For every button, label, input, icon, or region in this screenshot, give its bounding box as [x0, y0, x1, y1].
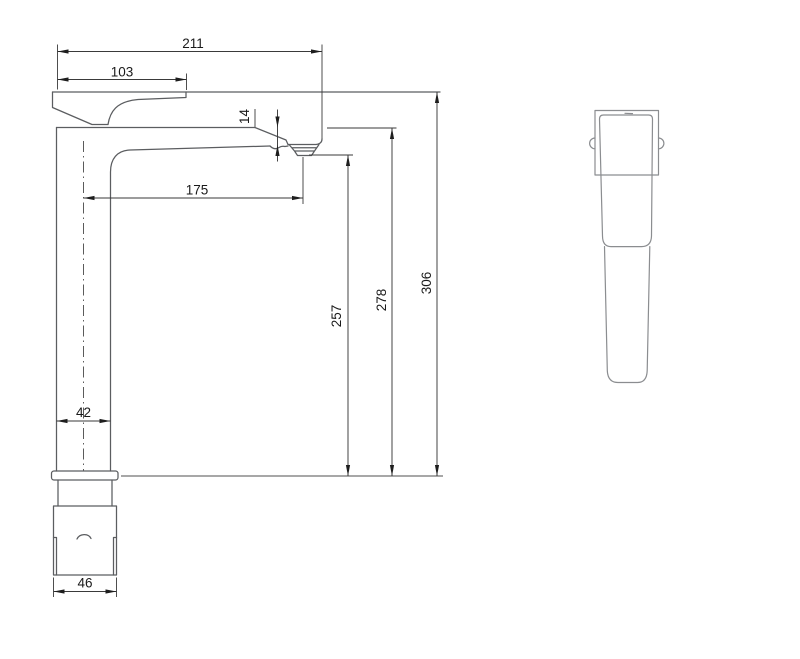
arrowhead-down	[346, 465, 350, 476]
handle-collar	[595, 111, 659, 176]
handle-neck	[605, 247, 650, 383]
base-flange	[52, 471, 119, 480]
dimension-outlet-height: 257	[309, 155, 353, 476]
handle-blade	[600, 115, 653, 247]
spout-nose-ledge	[288, 139, 322, 145]
arrowhead-right	[100, 419, 111, 423]
faucet-dimension-drawing: 211 103 14 175 257 278	[0, 0, 800, 659]
dimension-base-width: 46	[54, 576, 117, 598]
mounting-shank	[58, 480, 112, 506]
arrowhead-up	[435, 92, 439, 103]
dim-value-rim-height: 278	[374, 289, 389, 312]
dim-value-handle-length: 103	[111, 65, 134, 80]
arrowhead-left	[57, 419, 68, 423]
spout-nose-slope	[255, 128, 288, 145]
technical-drawing-canvas: 211 103 14 175 257 278	[0, 0, 800, 659]
arrowhead-right	[106, 589, 117, 593]
arrowhead-down	[275, 117, 279, 128]
arrowhead-down	[435, 465, 439, 476]
dimension-spout-reach: 175	[84, 157, 304, 204]
arrowhead-left	[58, 77, 69, 81]
dimension-body-width: 42	[57, 405, 111, 423]
dim-value-spout-drop: 14	[237, 109, 252, 125]
dim-value-outlet-height: 257	[329, 305, 344, 328]
arrowhead-up	[390, 128, 394, 139]
mounting-nut-detail-arc	[77, 535, 91, 539]
dim-value-overall-height: 306	[419, 272, 434, 295]
lever-back-wedge	[53, 92, 109, 125]
arrowhead-left	[58, 49, 69, 53]
arrowhead-right	[176, 77, 187, 81]
handle-pivot-pin-right	[659, 138, 664, 149]
dim-value-spout-reach: 175	[186, 183, 209, 198]
handle-side-view	[590, 111, 664, 383]
mounting-nut-block	[54, 506, 117, 575]
arrowhead-up	[275, 145, 279, 156]
dim-value-overall-length: 211	[182, 36, 204, 51]
arrowhead-right	[311, 49, 322, 53]
dimension-overall-length: 211	[58, 36, 323, 139]
spout-drip-edge	[270, 146, 288, 149]
faucet-front-view	[52, 92, 441, 575]
arrowhead-right	[292, 196, 303, 200]
arrowhead-left	[54, 589, 65, 593]
aerator-outlet	[289, 145, 319, 156]
handle-pivot-pin-left	[590, 138, 595, 149]
dimension-handle-length: 103	[58, 65, 187, 91]
dim-value-base-width: 46	[77, 576, 92, 591]
arrowhead-up	[346, 155, 350, 166]
dimension-overall-height: 306	[419, 92, 439, 476]
arrowhead-left	[84, 196, 95, 200]
dim-value-body-width: 42	[76, 405, 91, 420]
mounting-nut-step-lines	[54, 538, 117, 576]
arrowhead-down	[390, 465, 394, 476]
dimension-rim-height: 278	[327, 128, 397, 476]
lever-underside	[108, 92, 186, 125]
